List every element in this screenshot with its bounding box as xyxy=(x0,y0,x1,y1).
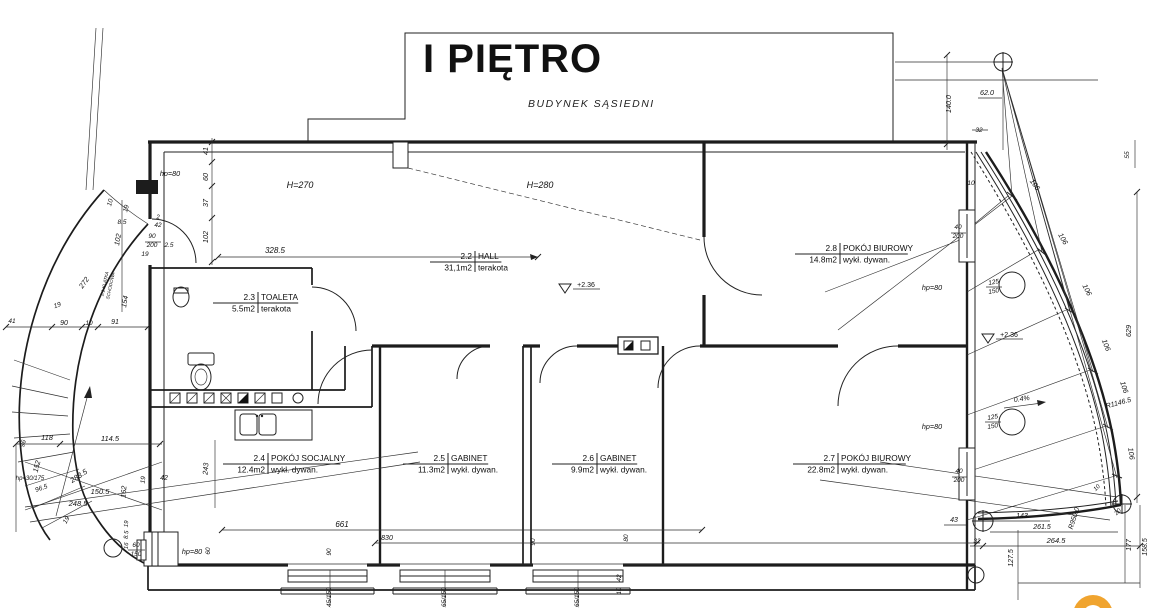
room-name: GABINET xyxy=(451,453,487,463)
room-number: 2.6 xyxy=(582,453,594,463)
dimension-label: 0.4% xyxy=(1013,395,1030,404)
dimension-label: 80 xyxy=(623,534,630,542)
washbasin xyxy=(173,287,189,307)
room-area: 14.8m2 xyxy=(809,255,837,265)
page-title: I PIĘTRO xyxy=(423,37,602,81)
room-name: GABINET xyxy=(600,453,636,463)
dimension-label: 165/150 xyxy=(441,587,448,608)
title-block: I PIĘTRO BUDYNEK SĄSIEDNI xyxy=(308,33,893,142)
dimension-label: H=270 xyxy=(287,180,314,190)
dimension-label: 10 xyxy=(85,320,93,327)
dimension-label: hp=80 xyxy=(922,283,942,292)
room-number: 2.7 xyxy=(823,453,835,463)
dimension-label: 125 xyxy=(987,413,999,422)
room-area: 11.3m2 xyxy=(418,465,445,475)
dimension-label: 90 xyxy=(60,320,68,327)
dimension-label: 125 xyxy=(988,278,1000,287)
dimension-label: 150.5 xyxy=(91,487,111,496)
dimension-label: 158.5 xyxy=(1142,538,1149,556)
staircase xyxy=(12,28,158,565)
column-marker xyxy=(104,539,122,557)
room-area: 12.4m2 xyxy=(237,465,265,475)
level-marker-icon xyxy=(982,334,994,343)
dimension-label: hp=30/175 xyxy=(16,476,45,482)
room-finish: terakota xyxy=(261,304,291,314)
dimension-label: 40 xyxy=(954,224,962,231)
dimension-label: 114.5 xyxy=(101,434,120,443)
dimension-label: 106 xyxy=(1028,177,1042,192)
dimension-label: 42 xyxy=(616,574,623,582)
dimension-label: 145/150 xyxy=(326,587,333,608)
dimension-label: 10 xyxy=(967,180,975,187)
dimension-label: 127.5 xyxy=(1008,549,1015,567)
dimension-label: 106 xyxy=(1118,380,1130,394)
dimension-label: 2 xyxy=(155,215,160,221)
dimension-label: 90 xyxy=(530,538,537,546)
dimension-label: 272 xyxy=(76,275,91,291)
dimension-label: 96 xyxy=(19,439,28,448)
dimension-label: 96.5 xyxy=(34,483,49,494)
room-finish: wykł. dywan. xyxy=(842,255,890,265)
dimension-label: 150 xyxy=(131,551,142,558)
dimension-label: 830 xyxy=(381,535,393,542)
dimension-label: 41 xyxy=(8,318,16,325)
dimension-label: 19 xyxy=(140,476,148,484)
dimension-label: 328.5 xyxy=(265,246,286,255)
room-area: 5.5m2 xyxy=(232,304,255,314)
room-name: POKÓJ BIUROWY xyxy=(843,243,914,253)
kitchen-sink xyxy=(240,414,257,435)
room-name: TOALETA xyxy=(261,292,299,302)
dimension-label: 200 xyxy=(952,233,964,240)
dimension-label: R950.0 xyxy=(1068,507,1082,531)
room-name: POKÓJ SOCJALNY xyxy=(271,453,346,463)
dimension-label: +2.36 xyxy=(577,282,595,289)
dimension-label: 32 xyxy=(973,538,981,545)
room-finish: wykł. dywan. xyxy=(450,465,498,475)
room-number: 2.2 xyxy=(460,251,472,261)
room-name: HALL xyxy=(478,251,499,261)
dimension-label: +2.36 xyxy=(1000,332,1018,339)
room-finish: wykł. dywan. xyxy=(599,465,647,475)
dimension-label: 106 xyxy=(1080,282,1093,297)
dimension-label: hp=80 xyxy=(160,169,180,178)
dimension-label: 19 xyxy=(124,520,131,528)
floorplan-page: I PIĘTRO BUDYNEK SĄSIEDNI xyxy=(0,0,1169,608)
dimension-label: R1146.5 xyxy=(1105,397,1132,411)
dimension-label: 243 xyxy=(200,462,210,476)
dimension-label: hp=80 xyxy=(182,547,202,556)
level-marker-icon xyxy=(559,284,571,293)
dimension-label: 37 xyxy=(201,198,210,207)
column-marker xyxy=(968,567,984,583)
room-name: POKÓJ BIUROWY xyxy=(841,453,912,463)
dimension-label: 91 xyxy=(111,319,119,326)
room-number: 2.5 xyxy=(433,453,445,463)
dimension-label: 661 xyxy=(335,520,348,529)
watermark-logo xyxy=(1073,595,1113,608)
dimension-label: 118 xyxy=(41,433,54,442)
stair-direction-arrow xyxy=(84,386,92,398)
room-number: 2.4 xyxy=(253,453,265,463)
dimension-label: 60 xyxy=(201,173,210,181)
wall-poche xyxy=(136,180,158,194)
dimension-label: 10 xyxy=(617,587,623,594)
dimension-label: 152 xyxy=(31,459,43,473)
dimensions xyxy=(3,52,1143,606)
fixtures xyxy=(137,287,312,566)
dimension-label: 40 xyxy=(955,468,963,475)
dimension-label: 10 xyxy=(106,198,115,207)
wall-hatch-squares xyxy=(170,393,303,403)
dimension-label: 200 xyxy=(146,242,158,249)
dimension-label: 264.5 xyxy=(1046,536,1067,545)
corner-shaft xyxy=(144,532,178,566)
dimension-label: 42 xyxy=(154,222,162,229)
dimension-label: 8.5 xyxy=(124,530,131,539)
dimension-label: 106 xyxy=(1100,338,1113,352)
dimension-label: H=280 xyxy=(527,180,554,190)
room-area: 9.9m2 xyxy=(571,465,594,475)
dimension-label: 143 xyxy=(1016,513,1028,520)
dimension-label: 162 xyxy=(119,485,129,498)
dimension-label: 177 xyxy=(1126,538,1133,551)
neighbor-building-label: BUDYNEK SĄSIEDNI xyxy=(528,98,655,110)
dimension-label: hp=80 xyxy=(922,422,942,431)
dimension-label: 43 xyxy=(950,517,958,524)
dimension-label: 8.5 xyxy=(117,219,126,226)
dimension-label: 150 xyxy=(988,287,1000,296)
room-finish: terakota xyxy=(478,263,508,273)
dimension-label: 60 xyxy=(205,547,212,555)
dimension-label: 150 xyxy=(987,422,999,431)
dimension-label: 261.5 xyxy=(1032,524,1051,531)
dimension-label: 140.0 xyxy=(944,95,953,113)
dimension-label: 60 xyxy=(132,542,140,549)
dimension-label: 106 xyxy=(1056,231,1070,246)
dimension-label: 154 xyxy=(119,295,130,308)
dimension-label: 90 xyxy=(326,548,333,556)
toilet-bowl xyxy=(191,364,211,390)
dimension-label: 200 xyxy=(953,477,965,484)
round-column xyxy=(999,409,1025,435)
room-number: 2.8 xyxy=(825,243,837,253)
room-area: 31,1m2 xyxy=(444,263,472,273)
kitchen-sink xyxy=(259,414,276,435)
room-labels-layer: 2.2HALL31,1m2terakota2.3TOALETA5.5m2tera… xyxy=(213,243,914,475)
dimension-label: 102 xyxy=(201,231,210,243)
slope-arrow xyxy=(1004,403,1042,408)
dimension-label: 102 xyxy=(112,233,123,246)
dimension-label: 2.5 xyxy=(163,242,173,249)
dimension-label: 19 xyxy=(53,301,63,310)
dimension-label: 41 xyxy=(201,147,210,155)
dimension-label: 42 xyxy=(160,475,168,482)
dimension-label: 16 xyxy=(124,542,131,550)
room-area: 22.8m2 xyxy=(807,465,835,475)
room-finish: wykł. dywan. xyxy=(270,465,318,475)
floorplan-canvas: I PIĘTRO BUDYNEK SĄSIEDNI xyxy=(0,0,1169,608)
dimension-label: 19 xyxy=(141,251,149,258)
room-finish: wykł. dywan. xyxy=(840,465,888,475)
dimension-label: 90 xyxy=(148,233,156,240)
dimension-label: 106 xyxy=(1126,447,1137,460)
dimension-label: 62.0 xyxy=(980,88,994,97)
room-number: 2.3 xyxy=(243,292,255,302)
dimension-label: 629 xyxy=(1124,325,1133,337)
toilet-tank xyxy=(188,353,214,365)
dimension-label: 55 xyxy=(1124,151,1131,159)
dimension-label: 165/150 xyxy=(574,587,581,608)
dimension-label: 248.5 xyxy=(68,499,89,508)
round-column xyxy=(999,272,1025,298)
dimension-label: 10 xyxy=(1093,483,1102,492)
dimension-label: 32 xyxy=(975,127,983,134)
